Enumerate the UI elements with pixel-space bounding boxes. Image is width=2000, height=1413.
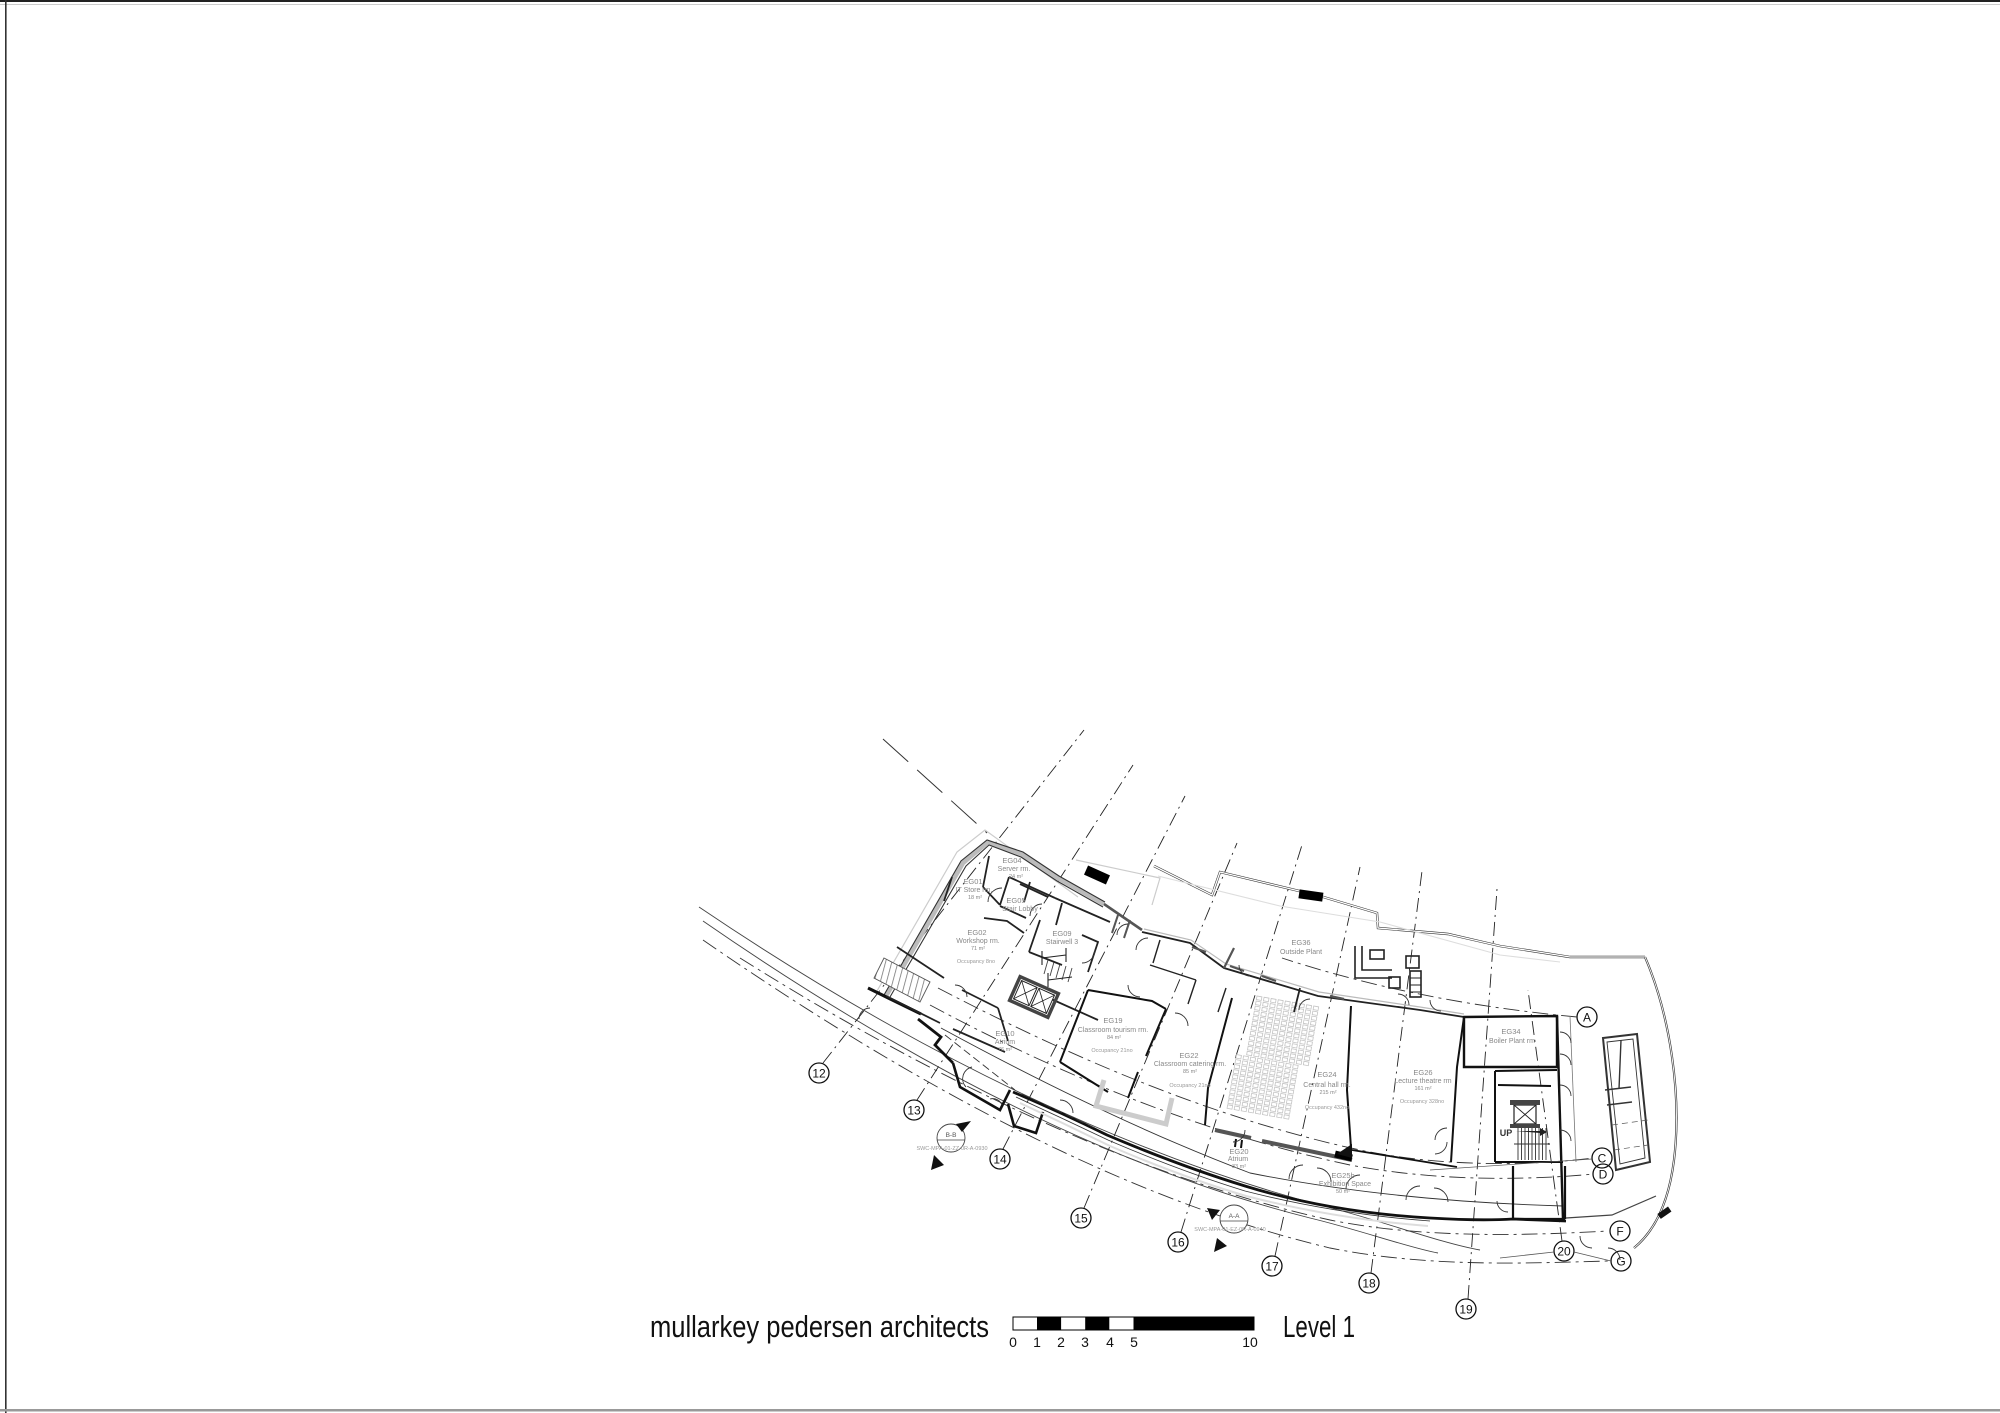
svg-text:SWC-MPA-01-EZ-0R-A-0940: SWC-MPA-01-EZ-0R-A-0940	[1194, 1227, 1265, 1233]
svg-text:Boiler Plant rm: Boiler Plant rm	[1489, 1038, 1535, 1045]
svg-text:71 m²: 71 m²	[971, 946, 985, 952]
svg-text:EG04: EG04	[1002, 856, 1021, 865]
svg-text:F: F	[1616, 1225, 1623, 1239]
svg-text:EG25b: EG25b	[1331, 1171, 1354, 1180]
svg-text:EG09: EG09	[1052, 929, 1071, 938]
svg-text:Occupancy 8no: Occupancy 8no	[957, 959, 995, 965]
svg-text:mullarkey pedersen architects: mullarkey pedersen architects	[650, 1309, 989, 1344]
svg-text:EG20: EG20	[1229, 1147, 1248, 1156]
svg-text:Atrium: Atrium	[995, 1039, 1015, 1046]
svg-text:EG02: EG02	[967, 928, 986, 937]
svg-text:161 m²: 161 m²	[1414, 1086, 1431, 1092]
svg-text:D: D	[1599, 1168, 1608, 1182]
svg-text:84 m²: 84 m²	[1107, 1035, 1121, 1041]
svg-text:Server rm.: Server rm.	[998, 866, 1031, 873]
svg-text:Stair Lobby: Stair Lobby	[1002, 906, 1038, 913]
svg-text:19: 19	[1459, 1303, 1473, 1317]
svg-text:4: 4	[1106, 1334, 1114, 1350]
svg-text:EG22: EG22	[1179, 1051, 1198, 1060]
svg-text:EG05: EG05	[1006, 896, 1025, 905]
svg-text:10: 10	[1242, 1334, 1258, 1350]
svg-text:85 m²: 85 m²	[1183, 1069, 1197, 1075]
svg-text:16: 16	[1171, 1236, 1185, 1250]
svg-text:1: 1	[1033, 1334, 1041, 1350]
svg-text:A: A	[1583, 1011, 1591, 1025]
svg-text:15: 15	[1074, 1212, 1088, 1226]
svg-text:17: 17	[1265, 1260, 1279, 1274]
svg-text:SWC-MPA-01-ZZ-0R-A-0930: SWC-MPA-01-ZZ-0R-A-0930	[916, 1146, 987, 1152]
svg-text:76 m²: 76 m²	[998, 1047, 1012, 1053]
svg-text:EG34: EG34	[1501, 1027, 1520, 1036]
svg-text:2: 2	[1057, 1334, 1065, 1350]
svg-text:Exhibition Space: Exhibition Space	[1319, 1181, 1371, 1188]
svg-text:Classroom tourism rm.: Classroom tourism rm.	[1078, 1027, 1148, 1034]
svg-text:Outside Plant: Outside Plant	[1280, 949, 1322, 956]
svg-text:Atrium: Atrium	[1228, 1156, 1248, 1163]
svg-text:EG01: EG01	[963, 877, 982, 886]
svg-text:50 m²: 50 m²	[1336, 1189, 1350, 1195]
svg-text:14: 14	[993, 1153, 1007, 1167]
svg-text:Occupancy 21no: Occupancy 21no	[1169, 1083, 1210, 1089]
svg-text:Lecture theatre rm: Lecture theatre rm	[1394, 1078, 1451, 1085]
svg-text:B-B: B-B	[946, 1132, 957, 1139]
svg-text:0: 0	[1009, 1334, 1017, 1350]
svg-text:Occupancy 328no: Occupancy 328no	[1400, 1099, 1444, 1105]
svg-text:A-A: A-A	[1229, 1213, 1241, 1220]
svg-text:IT Store rm.: IT Store rm.	[956, 887, 993, 894]
svg-text:24 m²: 24 m²	[1009, 874, 1023, 880]
svg-text:EG19: EG19	[1103, 1016, 1122, 1025]
svg-text:5: 5	[1130, 1334, 1138, 1350]
svg-text:13: 13	[907, 1104, 921, 1118]
svg-text:33 m²: 33 m²	[1232, 1164, 1246, 1170]
svg-text:Workshop rm.: Workshop rm.	[956, 938, 999, 945]
svg-text:12: 12	[812, 1067, 826, 1081]
svg-text:215 m²: 215 m²	[1319, 1090, 1336, 1096]
svg-text:20: 20	[1557, 1245, 1571, 1259]
svg-text:UP: UP	[1500, 1128, 1513, 1138]
svg-text:Stairwell 3: Stairwell 3	[1046, 939, 1078, 946]
svg-text:G: G	[1616, 1255, 1625, 1269]
svg-text:Occupancy 21no: Occupancy 21no	[1091, 1048, 1132, 1054]
svg-text:EG10: EG10	[995, 1029, 1014, 1038]
svg-text:EG24: EG24	[1317, 1070, 1336, 1079]
svg-text:18 m²: 18 m²	[968, 895, 982, 901]
svg-text:3: 3	[1081, 1334, 1089, 1350]
svg-text:Occupancy 432no: Occupancy 432no	[1305, 1105, 1349, 1111]
svg-text:EG26: EG26	[1413, 1068, 1432, 1077]
svg-text:18: 18	[1362, 1277, 1376, 1291]
svg-text:Central hall rm.: Central hall rm.	[1303, 1082, 1351, 1089]
svg-text:Level 1: Level 1	[1283, 1309, 1355, 1344]
svg-text:EG36: EG36	[1291, 938, 1310, 947]
svg-text:Classroom catering rm.: Classroom catering rm.	[1154, 1061, 1226, 1068]
